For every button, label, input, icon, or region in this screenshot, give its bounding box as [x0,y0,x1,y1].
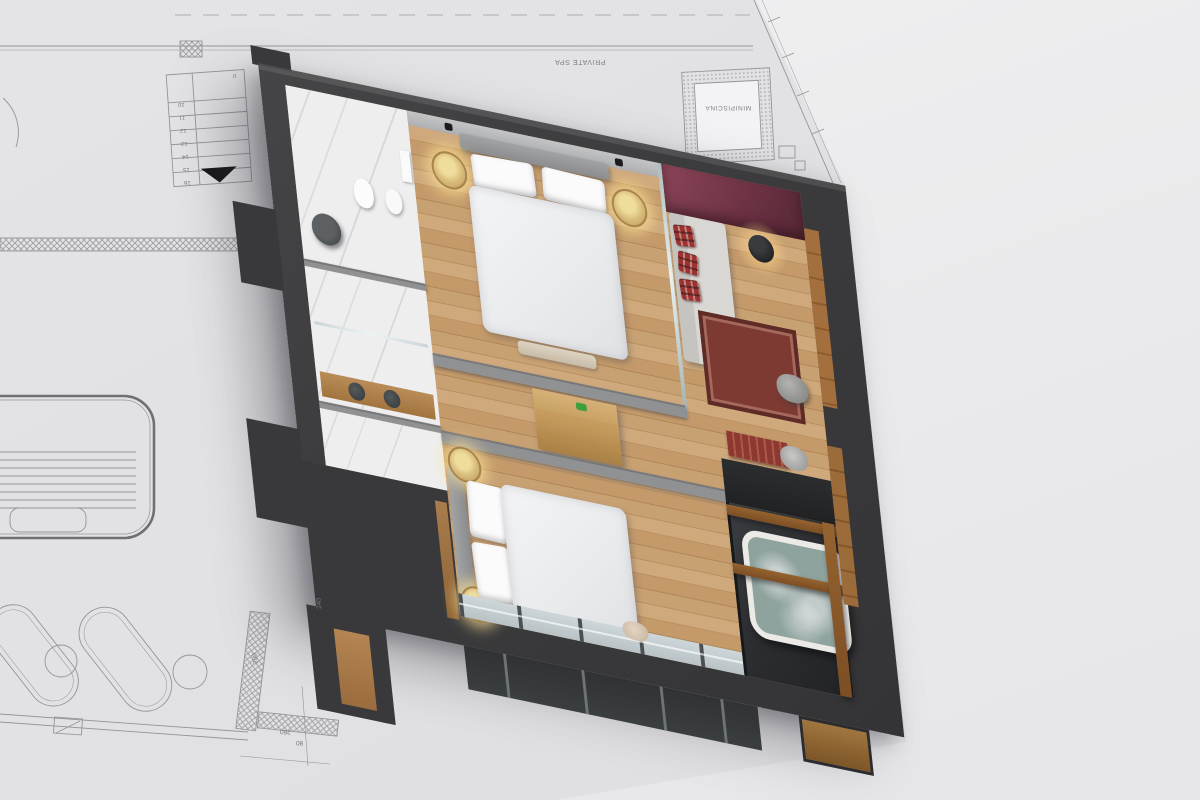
stair-direction-arrow [201,166,238,183]
wall-stub-left-lower [246,418,309,528]
stair-number: 14 [182,153,189,159]
vanity-sink [347,381,366,402]
toilet [352,177,375,210]
stair-number: 10 [178,101,185,107]
mullion-line [660,686,668,731]
stair-number: 11 [179,114,185,120]
mullion-line [581,670,589,715]
wall-hatch-band [0,238,252,251]
stair-start-label: 0 [233,72,236,78]
plaid-pillow [672,224,696,247]
stair-number: 16 [184,179,191,185]
minipiscina-plan [682,68,775,164]
column-section [180,41,202,57]
plaid-pillow [678,278,701,302]
floorplan-scene: PRIVATE SPA MINIPISCINA 10 11 12 13 14 1… [0,0,1200,800]
bathroom-1 [285,85,425,284]
stair-number: 15 [183,166,190,172]
stone-vessel-sink [310,211,343,248]
minipiscina-label: MINIPISCINA [688,104,768,111]
lounge-chairs-plan [0,595,207,722]
stair-number: 13 [181,140,188,146]
private-spa-label: PRIVATE SPA [540,58,620,65]
towel [399,150,412,183]
dimension-80: 80 [296,739,304,746]
plaid-pillow [678,250,698,276]
wall-stub-left-upper [233,201,285,292]
door-swing-arc [3,98,18,147]
vanity-sink [383,388,402,409]
stair-number: 12 [180,127,187,133]
bottom-wall-plan [0,611,339,766]
pool-plan [0,396,154,538]
dimension-240: 240 [316,598,324,609]
dimension-260: 260 [280,728,291,736]
dimension-200: 200 [251,653,259,665]
mullion-line [720,699,728,744]
bidet [384,187,403,216]
mullion-line [503,654,511,699]
shower-glass-panel [314,321,428,348]
wood-cladding-bottom-left [334,628,377,711]
